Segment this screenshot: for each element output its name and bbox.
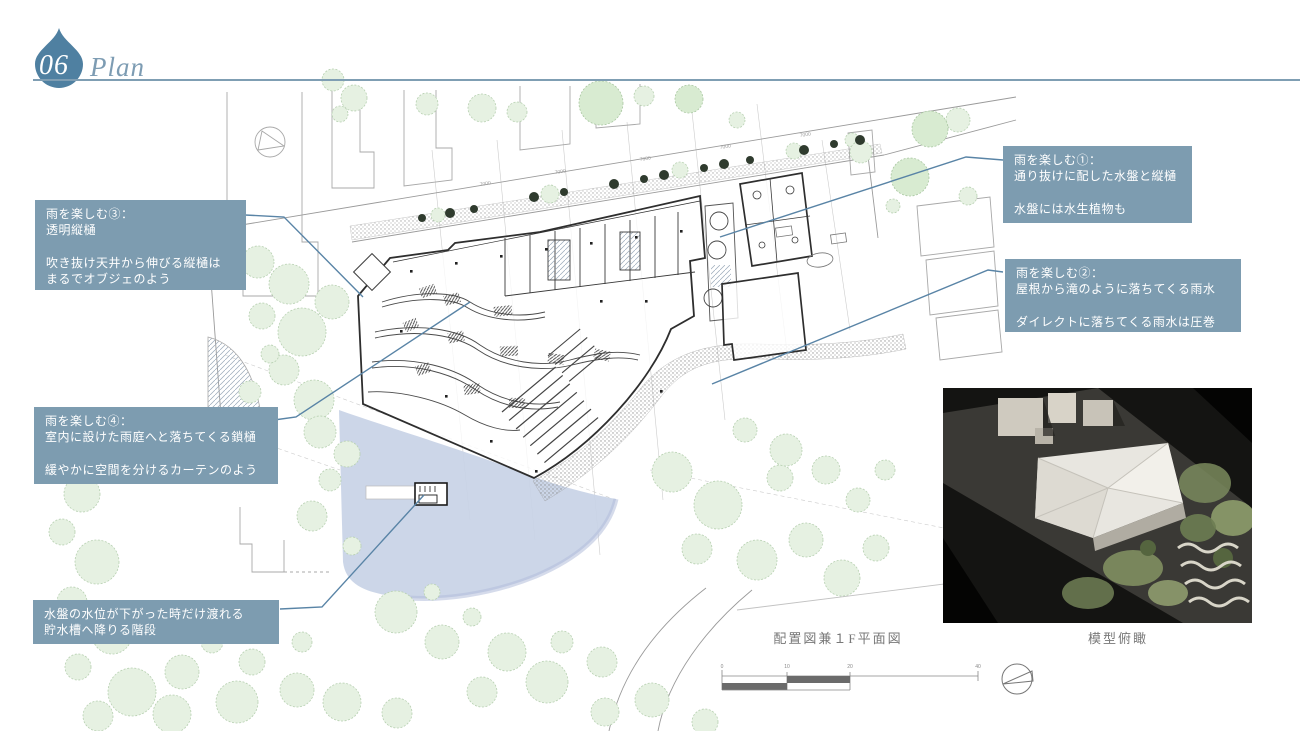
cistern-stair-structure	[415, 483, 447, 505]
header-divider	[33, 79, 1300, 81]
pond-bridge	[366, 486, 418, 499]
scale-label-10: 10	[784, 664, 790, 670]
scale-label-40: 40	[975, 664, 981, 670]
note-rain-2: 雨を楽しむ②： 屋根から滝のように落ちてくる雨水 ダイレクトに落ちてくる雨水は圧…	[1005, 259, 1241, 332]
scale-label-0: 0	[721, 664, 724, 670]
road-dimension-label: 7000	[479, 180, 491, 188]
north-arrow-icon	[1002, 664, 1033, 694]
presentation-slide: 7000 7000 7000 7000 7000	[0, 0, 1300, 731]
road-dimension-label: 7000	[554, 168, 566, 176]
road-dimension-label: 7000	[799, 131, 811, 139]
note-rain-3: 雨を楽しむ③： 透明縦樋 吹き抜け天井から伸びる縦樋は まるでオブジェのよう	[35, 200, 246, 290]
section-number: 06	[39, 50, 69, 82]
note-rain-4: 雨を楽しむ④： 室内に設けた雨庭へと落ちてくる鎖樋 緩やかに空間を分けるカーテン…	[34, 407, 278, 484]
road-dimension-label: 7000	[719, 143, 731, 151]
note-rain-1: 雨を楽しむ①： 通り抜けに配した水盤と縦樋 水盤には水生植物も	[1003, 146, 1192, 223]
caption-site-plan: 配置図兼１F平面図	[748, 628, 928, 647]
model-photo	[943, 388, 1252, 623]
scale-label-20: 20	[847, 664, 853, 670]
caption-model: 模型俯瞰	[1028, 628, 1208, 647]
road-dimension-label: 7000	[639, 155, 651, 163]
scale-bar: 0 10 20 40	[721, 664, 981, 690]
annex-building	[722, 173, 847, 360]
note-cistern-stair: 水盤の水位が下がった時だけ渡れる 貯水槽へ降りる階段	[33, 600, 279, 644]
